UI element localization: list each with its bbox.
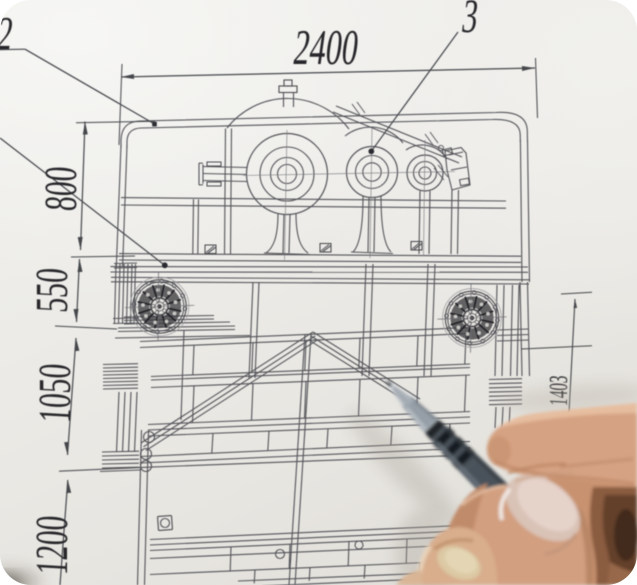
svg-text:2400: 2400 [290, 20, 362, 76]
svg-text:550: 550 [28, 267, 78, 314]
svg-text:1200: 1200 [28, 514, 78, 576]
svg-text:3: 3 [459, 0, 482, 43]
svg-text:1050: 1050 [31, 362, 81, 424]
svg-text:2: 2 [0, 7, 16, 60]
svg-text:800: 800 [37, 165, 87, 212]
